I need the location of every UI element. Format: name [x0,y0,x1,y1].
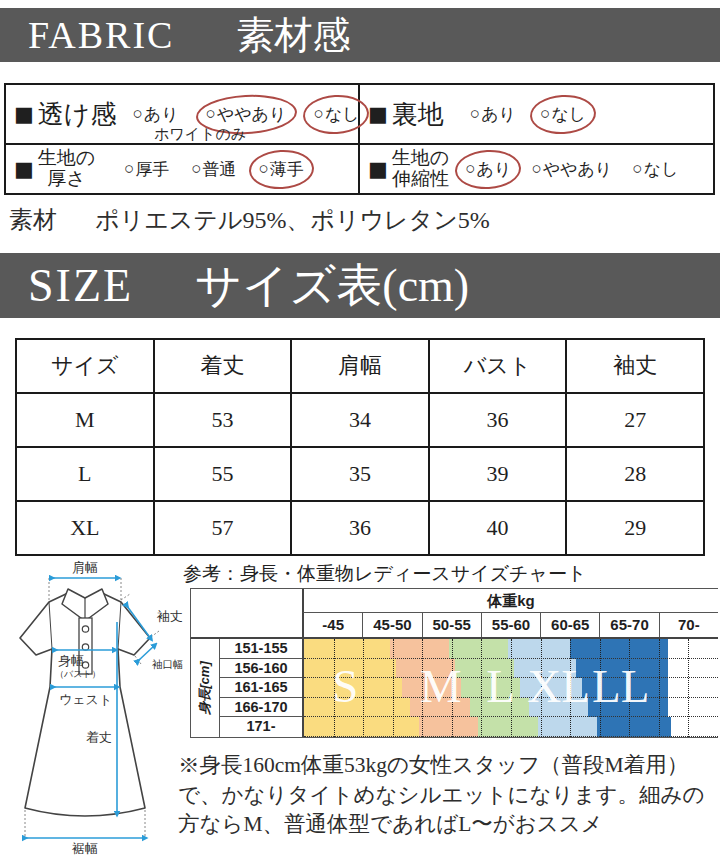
fabric-option-label: 薄手 [270,158,304,181]
size-header-cell: バスト [429,339,567,393]
fabric-label-line1: 生地の [38,147,95,168]
size-banner-ja: サイズ表(cm) [195,255,469,317]
fabric-label-line2: 厚さ [47,168,85,189]
radio-circle-icon: ○ [531,159,541,179]
height-rows: 151-155156-160161-165166-170171- [220,639,302,737]
height-range-label: 166-170 [220,698,302,718]
size-header-row: サイズ着丈肩幅バスト袖丈 [16,339,704,393]
fabric-option-label: なし [644,158,679,181]
dress-measurement-diagram: 肩幅 袖丈 袖口幅 身幅 （バスト） ウェスト 着丈 裾幅 [5,558,200,855]
size-table-cell: 29 [566,501,704,555]
radio-circle-icon: ○ [259,159,269,179]
waist-label: ウェスト [59,692,112,707]
fabric-option-label: あり [477,158,512,181]
fabric-option: ○あり [132,103,178,126]
fabric-option-label: なし [551,103,586,126]
size-table-cell: 39 [429,447,567,501]
weight-range-label: 50-55 [423,613,482,637]
bust-label: （バスト） [55,669,101,679]
radio-circle-icon: ○ [206,104,216,124]
size-section-banner: SIZE サイズ表(cm) [0,253,720,318]
fabric-option: ○普通 [191,158,236,181]
fabric-banner-en: FABRIC [28,13,174,57]
fabric-option: ○なし [540,103,586,126]
size-table-cell: 36 [429,393,567,447]
size-table-row: XL57364029 [16,501,704,555]
fabric-label-text: 透け感 [38,97,117,132]
fabric-cell-stretch: ■ 生地の 伸縮性 ○あり○ややあり○なし [360,145,713,193]
fabric-cell-sheerness: ■ 透け感 ○あり○ややあり○なし ホワイトのみ [6,85,360,145]
material-label: 素材 [9,207,57,233]
size-table-header: サイズ着丈肩幅バスト袖丈 [16,339,704,393]
radio-circle-icon: ○ [465,159,475,179]
weight-range-label: 70- [660,613,718,637]
product-info-page: FABRIC 素材感 ■ 透け感 ○あり○ややあり○なし ホワイトのみ ■ 裏地… [0,0,720,855]
chart-grid-line [393,639,394,737]
button-icon [82,626,88,632]
chart-corner-cell [190,589,302,639]
fabric-option-label: ややあり [217,103,287,126]
size-table-cell: 57 [154,501,292,555]
size-zone-letter: S [332,659,358,713]
fabric-option: ○なし [632,158,678,181]
weight-range-label: 45-50 [363,613,422,637]
shoulder-width-label: 肩幅 [72,560,98,575]
height-range-label: 156-160 [220,659,302,679]
chart-grid-line [688,639,689,737]
fabric-option: ○あり [470,103,516,126]
body-width-label: 身幅 [58,653,84,668]
size-table-body: M53343627L55353928XL57364029 [16,393,704,555]
chart-grid-line [481,639,482,737]
fabric-option-label: なし [325,103,360,126]
size-table-cell: XL [16,501,154,555]
height-axis-label: 身長[cm] [190,639,220,737]
fabric-options: ○あり○ややあり○なし [132,103,386,126]
fabric-cell-thickness: ■ 生地の 厚さ ○厚手○普通○薄手 [6,145,360,193]
fabric-label-line2: 伸縮性 [392,168,449,189]
radio-circle-icon: ○ [632,159,642,179]
size-table-cell: 53 [154,393,292,447]
cuff-width-label: 袖口幅 [152,659,184,670]
weight-range-label: 65-70 [600,613,659,637]
radio-circle-icon: ○ [540,104,550,124]
fabric-cell-label: ■ 生地の 伸縮性 [368,148,449,189]
fabric-label-text: 生地の 厚さ [38,148,95,189]
fabric-option-label: ややあり [543,158,613,181]
chart-bands: SMLXLLL [302,639,718,737]
weight-range-label: 60-65 [541,613,600,637]
size-table-cell: 40 [429,501,567,555]
fabric-option: ○薄手 [259,158,304,181]
size-header-cell: 袖丈 [566,339,704,393]
material-value: ポリエステル95%、ポリウレタン5% [95,207,490,233]
radio-circle-icon: ○ [313,104,323,124]
radio-circle-icon: ○ [191,159,201,179]
height-range-label: 161-165 [220,678,302,698]
square-bullet-icon: ■ [368,157,388,181]
fabric-cell-label: ■ 裏地 [368,97,444,132]
fabric-label-text: 生地の 伸縮性 [392,148,449,189]
fabric-option: ○なし [313,103,359,126]
height-weight-size-chart: 体重kg -4545-5050-5555-6060-6565-7070- 身長[… [190,588,718,738]
sleeve-length-label: 袖丈 [156,609,183,624]
size-zone-letter: M [420,659,462,713]
size-table-cell: 35 [291,447,429,501]
size-table-cell: 28 [566,447,704,501]
size-header-cell: サイズ [16,339,154,393]
fabric-section-banner: FABRIC 素材感 [0,8,720,62]
size-table-row: L55353928 [16,447,704,501]
white-only-note: ホワイトのみ [154,125,246,144]
size-table-cell: L [16,447,154,501]
size-table-row: M53343627 [16,393,704,447]
size-table-cell: 36 [291,501,429,555]
fabric-option: ○ややあり [531,158,612,181]
size-table-cell: M [16,393,154,447]
fabric-options: ○あり○なし [470,103,610,126]
fabric-option: ○あり [465,158,511,181]
chart-grid-line [659,639,660,737]
fabric-banner-ja: 素材感 [236,10,350,61]
size-table-cell: 34 [291,393,429,447]
fit-advice-note: ※身長160cm体重53kgの女性スタッフ（普段M着用）で、かなりタイトめなシル… [178,751,720,840]
fabric-option-label: 普通 [203,158,237,181]
fabric-option-label: あり [144,103,179,126]
size-table-cell: 27 [566,393,704,447]
weight-columns: -4545-5050-5555-6060-6565-7070- [302,613,718,639]
hem-width-label: 裾幅 [71,841,98,855]
fabric-label-text: 裏地 [392,97,444,132]
size-zone-letter: LL [592,659,649,713]
fabric-cell-label: ■ 透け感 [14,97,116,132]
square-bullet-icon: ■ [14,102,34,126]
fabric-attribute-table: ■ 透け感 ○あり○ややあり○なし ホワイトのみ ■ 裏地 ○あり○なし ■ 生… [4,83,715,195]
fabric-cell-label: ■ 生地の 厚さ [14,148,110,189]
square-bullet-icon: ■ [368,102,388,126]
size-measurements-table: サイズ着丈肩幅バスト袖丈 M53343627L55353928XL5736402… [15,338,705,556]
fabric-option: ○厚手 [124,158,169,181]
weight-range-label: 55-60 [482,613,541,637]
chart-grid-line [363,639,364,737]
reference-chart-title: 参考：身長・体重物レディースサイズチャート [183,561,586,587]
square-bullet-icon: ■ [14,157,34,181]
fabric-cell-lining: ■ 裏地 ○あり○なし [360,85,713,145]
material-composition: 素材 ポリエステル95%、ポリウレタン5% [9,204,490,236]
radio-circle-icon: ○ [132,104,142,124]
fabric-label-line1: 生地の [392,147,449,168]
height-axis-text: 身長[cm] [196,661,214,714]
fabric-options: ○あり○ややあり○なし [465,158,698,181]
size-zone-letter: XL [527,659,590,713]
radio-circle-icon: ○ [470,104,480,124]
height-range-label: 171- [220,717,302,737]
weight-range-label: -45 [304,613,363,637]
size-zone-letter: L [486,659,515,713]
radio-circle-icon: ○ [124,159,134,179]
size-header-cell: 着丈 [154,339,292,393]
size-header-cell: 肩幅 [291,339,429,393]
fabric-option-label: あり [481,103,516,126]
fabric-option: ○ややあり [206,103,287,126]
size-banner-en: SIZE [28,259,133,312]
fabric-option-label: 厚手 [135,158,169,181]
size-table-cell: 55 [154,447,292,501]
fabric-options: ○厚手○普通○薄手 [124,158,326,181]
height-range-label: 151-155 [220,639,302,659]
length-label: 着丈 [86,730,112,745]
weight-header: 体重kg [302,589,718,613]
